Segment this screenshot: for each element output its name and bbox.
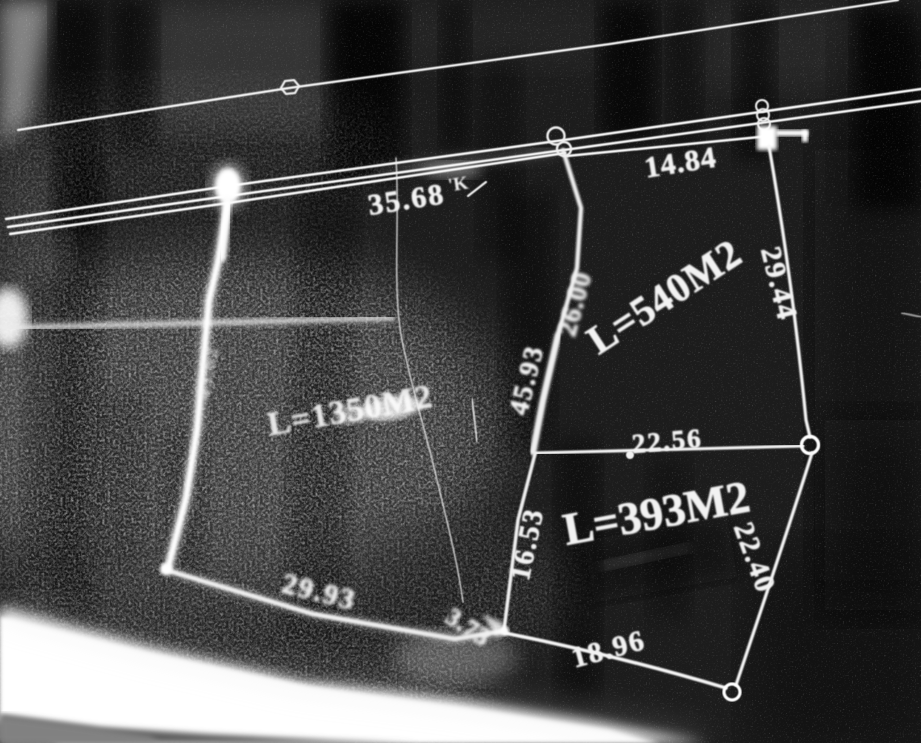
svg-text:22.56: 22.56 xyxy=(631,423,704,459)
svg-text:'K: 'K xyxy=(447,173,470,197)
